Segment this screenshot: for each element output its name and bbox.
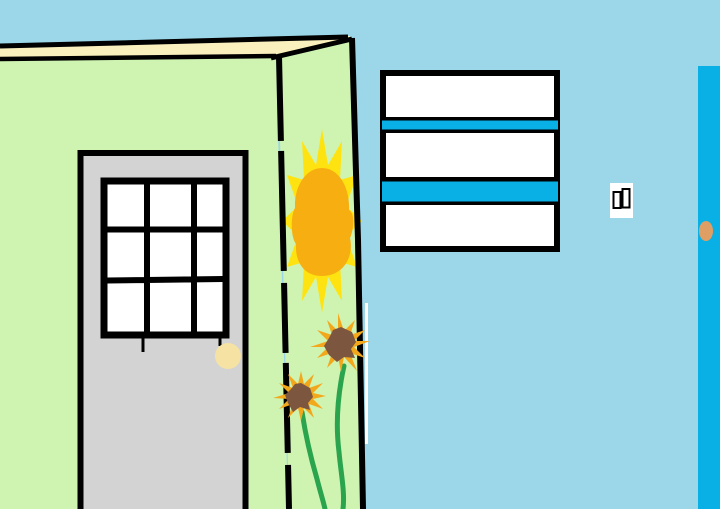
sun-core (292, 168, 354, 276)
sign-stripe-thin (382, 121, 558, 130)
striped-sign-group (382, 73, 558, 249)
blue-door[interactable] (698, 66, 720, 509)
front-door-group (81, 153, 246, 509)
door-knob[interactable] (215, 343, 241, 369)
striped-sign (383, 73, 557, 249)
light-switch-group (610, 183, 633, 218)
door-window (104, 181, 226, 335)
light-switch-toggle[interactable] (614, 192, 621, 208)
light-switch-toggle[interactable] (623, 189, 630, 208)
drawing-canvas (0, 0, 720, 509)
trim-bottom-outline (0, 56, 276, 59)
blue-door-group (698, 66, 720, 509)
open-door-panel-group (271, 38, 367, 509)
sign-stripe-thick (382, 182, 558, 202)
blue-door-knob[interactable] (699, 221, 713, 241)
